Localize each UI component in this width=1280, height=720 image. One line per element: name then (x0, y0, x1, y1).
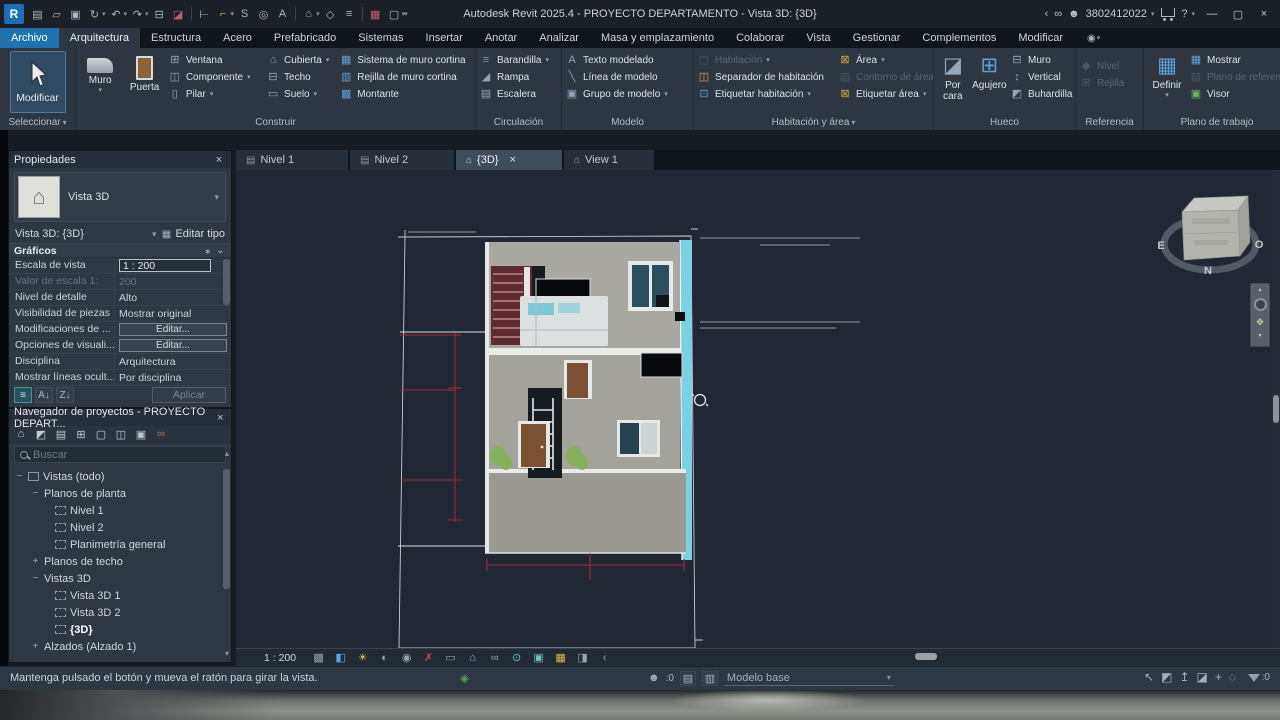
tab-gestionar[interactable]: Gestionar (842, 28, 912, 48)
instance-name[interactable]: Vista 3D: {3D} (15, 228, 84, 240)
pan-zoom-icon[interactable]: ✥ (1256, 317, 1264, 328)
vertical-opening-icon: ↕ (1010, 71, 1024, 84)
hueco-vertical-button[interactable]: ↕Vertical (1010, 71, 1072, 84)
property-label: Escala de vista (9, 258, 115, 273)
tree-item-vistas-todo[interactable]: −Vistas (todo) (9, 468, 231, 485)
tag-icon[interactable]: ◎ (254, 5, 273, 23)
temporary-isolate-icon[interactable]: ⊙ (509, 651, 524, 665)
property-label: Nivel de detalle (9, 290, 115, 305)
type-selector[interactable]: ⌂ Vista 3D ▾ (14, 172, 226, 222)
property-value[interactable]: Arquitectura (115, 356, 231, 368)
families-icon[interactable]: ◫ (113, 427, 129, 441)
navigation-bar[interactable]: ▴ ✥ ▾ (1250, 283, 1270, 347)
stair-icon: ▤ (479, 88, 493, 101)
collapse-icon[interactable]: ‹ (1045, 8, 1049, 20)
properties-title-bar[interactable]: Propiedades × (9, 151, 231, 168)
record-menu[interactable]: ◉▾ (1080, 28, 1108, 48)
ceiling-icon: ⊟ (266, 71, 280, 84)
reveal-hidden-icon[interactable]: ∞ (487, 651, 502, 665)
property-label: Visibilidad de piezas (9, 306, 115, 321)
property-row-escala[interactable]: Escala de vista (9, 258, 231, 274)
panel-circulacion: ≡Barandilla ◢Rampa ▤Escalera Circulación (476, 48, 562, 130)
tab-complementos[interactable]: Complementos (911, 28, 1007, 48)
instance-selector-row: Vista 3D: {3D} ▾ ▦ Editar tipo (9, 225, 231, 243)
more-controls-icon[interactable]: ‹ (597, 651, 612, 665)
window-icon: ⊞ (168, 54, 182, 67)
view-scale-button[interactable]: 1 : 200 (264, 652, 296, 664)
property-row-modificaciones[interactable]: Modificaciones de ... Editar... (9, 322, 231, 338)
compass-east-label: E (1157, 240, 1164, 252)
view-cube (1182, 196, 1250, 260)
componente-button[interactable]: ◫Componente (168, 71, 264, 84)
detail-level-icon[interactable]: ▩ (311, 651, 326, 665)
views-all-icon (28, 472, 39, 481)
view-tab-bar: ▤Nivel 1 ▤Nivel 2 ⌂{3D}× ⌂View 1 (236, 150, 1280, 170)
displace-elements-icon[interactable]: ▣ (531, 651, 546, 665)
escalera-button[interactable]: ▤Escalera (479, 88, 549, 101)
tab-anotar[interactable]: Anotar (474, 28, 528, 48)
chevron-down-icon: ▾ (887, 673, 891, 682)
property-row-lineas-ocultas[interactable]: Mostrar líneas ocult... Por disciplina (9, 370, 231, 386)
editable-count: :0 (666, 673, 674, 684)
open-icon[interactable]: ▱ (47, 5, 66, 23)
collapse-icons[interactable]: ⁎ ⌄ (205, 245, 226, 256)
tree-item-alzados[interactable]: +Alzados (Alzado 1) (9, 638, 231, 655)
lock-3d-view-icon[interactable]: ⌂ (465, 651, 480, 665)
model-3d-view[interactable]: E O N (236, 170, 1280, 648)
close-view-icon[interactable]: × (505, 154, 519, 166)
tree-item-3d-current[interactable]: {3D} (9, 621, 231, 638)
modify-label: Modificar (16, 92, 59, 104)
tree-item-vista-3d-1[interactable]: Vista 3D 1 (9, 587, 231, 604)
property-value[interactable]: Alto (115, 292, 231, 304)
modify-cursor-icon (27, 61, 49, 89)
property-row-opciones[interactable]: Opciones de visuali... Editar... (9, 338, 231, 354)
quick-access-toolbar: ▤ ▱ ▣ ↻▾ ↶▾ ↷▾ ⊟ ◪ ⊢ ⌐▾ S ◎ A ⌂▾ ◇ ≡ ▦ ▢… (28, 5, 409, 23)
properties-palette: Propiedades × ⌂ Vista 3D ▾ Vista 3D: {3D… (8, 150, 232, 408)
horizontal-scrollbar-thumb[interactable] (915, 653, 937, 660)
revit-logo[interactable]: R (4, 4, 24, 24)
view-tab-nivel-2[interactable]: ▤Nivel 2 (350, 150, 454, 170)
rampa-button[interactable]: ◢Rampa (479, 71, 549, 84)
browser-tree: −Vistas (todo) −Planos de planta Nivel 1… (9, 466, 231, 655)
area-icon: ⊠ (838, 54, 852, 67)
worksharing-icon[interactable]: ◈ (460, 671, 469, 685)
navbar-expand-icon[interactable]: ▴ (1258, 288, 1261, 292)
tree-item-nivel-2[interactable]: Nivel 2 (9, 519, 231, 536)
tab-colaborar[interactable]: Colaborar (725, 28, 795, 48)
panel-label-plano-de-trabajo[interactable]: Plano de trabajo (1144, 115, 1280, 130)
level-icon: ◆ (1079, 60, 1093, 73)
mullion-icon: ▩ (339, 88, 353, 101)
area-boundary-icon: ▧ (838, 71, 852, 84)
panel-plano-de-trabajo: ▦ Definir▾ ▦Mostrar ▨Plano de referencia… (1144, 48, 1280, 130)
edit-type-button[interactable]: ▦ Editar tipo (160, 228, 225, 241)
select-by-face-icon[interactable]: ◪ (1197, 670, 1208, 684)
properties-title: Propiedades (14, 154, 76, 166)
edit-visibility-button[interactable]: Editar... (119, 323, 227, 336)
panel-construir: Muro▾ Puerta ⊞Ventana ◫Componente ▯Pilar… (76, 48, 476, 130)
rejilla-muro-cortina-button[interactable]: ▥Rejilla de muro cortina (339, 71, 472, 84)
plan-view-icon: ▤ (246, 155, 255, 166)
tab-acero[interactable]: Acero (212, 28, 263, 48)
panel-label-modelo[interactable]: Modelo (562, 115, 693, 130)
home-view-icon[interactable]: ⌂ (13, 427, 29, 441)
por-cara-button[interactable]: ◪ Por cara (937, 50, 969, 104)
panel-habitacion-y-area: ▢Habitación ◫Separador de habitación ⊡Et… (694, 48, 934, 130)
tab-masa-y-emplazamiento[interactable]: Masa y emplazamiento (590, 28, 725, 48)
chevron-down-icon[interactable]: ▾ (152, 229, 157, 240)
pillar-icon: ▯ (168, 88, 182, 101)
links-icon[interactable]: ∞ (153, 427, 169, 441)
tab-sistemas[interactable]: Sistemas (347, 28, 414, 48)
legends-icon[interactable]: ▢ (93, 427, 109, 441)
model-line-icon: ╲ (565, 71, 579, 84)
property-label: Disciplina (9, 354, 115, 369)
view-icon (55, 506, 66, 515)
dormer-icon: ◩ (1010, 88, 1024, 101)
floor-icon: ▭ (266, 88, 280, 101)
room-separator-icon: ◫ (697, 71, 711, 84)
property-value: 200 (115, 276, 231, 288)
apply-button[interactable]: Aplicar (152, 387, 226, 403)
linea-de-modelo-button[interactable]: ╲Línea de modelo (565, 71, 668, 84)
design-option-select[interactable]: Modelo base ▾ (724, 670, 894, 686)
edit-display-options-button[interactable]: Editar... (119, 339, 227, 352)
panel-modelo: ATexto modelado ╲Línea de modelo ▣Grupo … (562, 48, 694, 130)
status-center-group: ☻ :0 ▤ ▥ Modelo base ▾ (648, 670, 894, 686)
modify-button[interactable]: Modificar (10, 51, 66, 113)
panel-hueco: ◪ Por cara ⊞ Agujero ⊟Muro ↕Vertical ◩Bu… (934, 48, 1076, 130)
ventana-button[interactable]: ⊞Ventana (168, 54, 264, 67)
compass-west-label: O (1255, 239, 1264, 251)
groups-icon[interactable]: ▣ (133, 427, 149, 441)
close-icon[interactable]: × (215, 412, 226, 424)
grid-icon: ⊞ (1079, 77, 1093, 90)
type-name: Vista 3D (68, 191, 109, 203)
account-id[interactable]: 3802412022 (1086, 8, 1147, 20)
set-workplane-icon: ▦ (1153, 52, 1181, 78)
mostrar-button[interactable]: ▦Mostrar (1189, 54, 1280, 67)
contorno-de-area-button[interactable]: ▧Contorno de área (838, 71, 930, 84)
view-tab-3d-active[interactable]: ⌂{3D}× (456, 150, 562, 170)
view-tab-nivel-1[interactable]: ▤Nivel 1 (236, 150, 348, 170)
muro-button[interactable]: Muro▾ (79, 50, 121, 95)
scale-value-input[interactable] (119, 259, 211, 272)
section-box-icon[interactable]: ◨ (575, 651, 590, 665)
redo-dropdown[interactable]: ▾ (145, 10, 149, 18)
sun-path-icon[interactable]: ☀ (355, 651, 370, 665)
sort-menu-icon[interactable]: ≡ (14, 387, 32, 403)
sheets-icon[interactable]: ▤ (53, 427, 69, 441)
search-icon[interactable]: ∞ (1054, 8, 1062, 20)
close-hidden-windows-icon[interactable]: ▦ (366, 5, 385, 23)
property-row-disciplina[interactable]: Disciplina Arquitectura (9, 354, 231, 370)
crop-view-icon[interactable]: ✗ (421, 651, 436, 665)
thin-lines-icon[interactable]: ≡ (340, 5, 359, 23)
worksets-icon[interactable]: ▤ (680, 671, 696, 686)
selection-set-icon[interactable]: ◌ (1229, 670, 1236, 684)
tab-archivo[interactable]: Archivo (0, 28, 59, 48)
tag-room-icon: ⊡ (697, 88, 711, 101)
area-button[interactable]: ⊠Área (838, 54, 930, 67)
status-bar: Mantenga pulsado el botón y mueva el rat… (0, 666, 1280, 690)
compass-north-label: N (1204, 265, 1212, 277)
panel-label-seleccionar[interactable]: Seleccionar (0, 115, 75, 130)
tab-modificar[interactable]: Modificar (1007, 28, 1074, 48)
room-icon: ▢ (697, 54, 711, 67)
buhardilla-button[interactable]: ◩Buhardilla (1010, 88, 1072, 101)
sync-dropdown[interactable]: ▾ (102, 10, 106, 18)
spline-icon[interactable]: S (235, 5, 254, 23)
tab-estructura[interactable]: Estructura (140, 28, 212, 48)
panel-label-hueco[interactable]: Hueco (934, 115, 1075, 130)
select-underlay-icon[interactable]: ◩ (1161, 670, 1172, 684)
roof-icon: ⌂ (266, 54, 280, 67)
close-button[interactable]: × (1254, 6, 1274, 22)
minimize-button[interactable]: — (1202, 6, 1222, 22)
divider (191, 7, 192, 21)
properties-grid: Escala de vista Valor de escala 1: 200 N… (9, 258, 231, 386)
opening-by-face-icon: ◪ (939, 52, 967, 78)
section-icon[interactable]: ◇ (321, 5, 340, 23)
filter-control[interactable]: :0 (1248, 672, 1270, 683)
barandilla-button[interactable]: ≡Barandilla (479, 54, 549, 67)
pilar-button[interactable]: ▯Pilar (168, 88, 264, 101)
rendering-icon[interactable]: ◉ (399, 651, 414, 665)
store-cart-icon[interactable] (1161, 8, 1175, 17)
shaft-icon: ⊞ (975, 52, 1003, 78)
shadows-icon[interactable]: ◐ (377, 651, 392, 665)
drag-on-selection-icon[interactable]: + (1215, 670, 1222, 684)
title-bar: R ▤ ▱ ▣ ↻▾ ↶▾ ↷▾ ⊟ ◪ ⊢ ⌐▾ S ◎ A ⌂▾ ◇ ≡ ▦… (0, 0, 1280, 28)
user-icon[interactable]: ☻ (1068, 8, 1080, 20)
schedules-icon[interactable]: ⊞ (73, 427, 89, 441)
property-row-visibilidad[interactable]: Visibilidad de piezas Mostrar original (9, 306, 231, 322)
plano-de-referencia-button[interactable]: ▨Plano de referencia (1189, 71, 1280, 84)
filter-icon (1248, 674, 1260, 682)
search-icon (20, 451, 28, 459)
panel-seleccionar: Modificar Seleccionar (0, 48, 76, 130)
puerta-button[interactable]: Puerta (123, 50, 165, 95)
property-value[interactable]: Mostrar original (115, 308, 231, 320)
tree-item-nivel-1[interactable]: Nivel 1 (9, 502, 231, 519)
curtain-system-icon: ▦ (339, 54, 353, 67)
panel-label-habitacion-y-area[interactable]: Habitación y área (694, 115, 933, 130)
editable-only-icon[interactable]: ☻ (648, 672, 660, 684)
browser-search[interactable] (14, 446, 226, 463)
view-icon (55, 608, 66, 617)
tab-insertar[interactable]: Insertar (415, 28, 474, 48)
print-icon[interactable]: ⊟ (150, 5, 169, 23)
plan-view-icon: ▤ (360, 155, 369, 166)
transfer-icon[interactable]: ◪ (169, 5, 188, 23)
select-pinned-icon[interactable]: ↥ (1179, 670, 1189, 684)
grupo-de-modelo-button[interactable]: ▣Grupo de modelo (565, 88, 668, 101)
house-view-icon: ⌂ (574, 155, 580, 166)
status-message: Mantenga pulsado el botón y mueva el rat… (10, 672, 318, 684)
ribbon-tab-bar: Archivo Arquitectura Estructura Acero Pr… (0, 28, 1280, 48)
divider (295, 7, 296, 21)
project-browser-palette: Navegador de proyectos - PROYECTO DEPART… (8, 408, 232, 663)
tab-vista[interactable]: Vista (795, 28, 841, 48)
save-icon[interactable]: ▣ (66, 5, 85, 23)
scrollbar-thumb[interactable] (1273, 395, 1279, 423)
window-title: Autodesk Revit 2025.4 - PROYECTO DEPARTA… (463, 8, 816, 20)
filter-count: :0 (1262, 672, 1270, 683)
techo-button[interactable]: ⊟Techo (266, 71, 337, 84)
tree-item-planimetria-general[interactable]: Planimetría general (9, 536, 231, 553)
camera-icon: ◉ (1087, 33, 1096, 44)
properties-footer: ≡ A↓ Z↓ Aplicar (14, 386, 226, 404)
property-label: Valor de escala 1: (9, 274, 115, 289)
view-dropdown[interactable]: ▾ (316, 10, 320, 18)
view-icon (55, 591, 66, 600)
vertical-scrollbar[interactable] (1272, 170, 1280, 648)
nivel-button[interactable]: ◆Nivel (1079, 60, 1124, 73)
text-icon[interactable]: A (273, 5, 292, 23)
dimension-dropdown[interactable]: ▾ (231, 10, 235, 18)
help-dropdown[interactable]: ▾ (1191, 10, 1195, 18)
edit-type-icon: ▦ (160, 228, 172, 241)
titlebar-right: ‹ ∞ ☻ 3802412022 ▾ ? ▾ — ▢ × (1045, 6, 1280, 22)
tag-area-icon: ⊠ (838, 88, 852, 101)
panel-label-circulacion[interactable]: Circulación (476, 115, 561, 130)
door-icon (136, 56, 153, 80)
tree-item-vista-3d-2[interactable]: Vista 3D 2 (9, 604, 231, 621)
property-label: Modificaciones de ... (9, 322, 115, 337)
search-input[interactable] (33, 449, 193, 461)
texto-modelado-button[interactable]: ATexto modelado (565, 54, 668, 67)
account-dropdown[interactable]: ▾ (1151, 10, 1155, 18)
ramp-icon: ◢ (479, 71, 493, 84)
selection-toggles: ↖ ◩ ↥ ◪ + ◌ (1144, 670, 1236, 684)
drawing-area[interactable]: E O N ▴ ✥ ▾ (236, 170, 1280, 648)
railing-icon: ≡ (479, 54, 493, 67)
tab-prefabricado[interactable]: Prefabricado (263, 28, 347, 48)
type-thumbnail-house-icon: ⌂ (18, 176, 60, 218)
chevron-down-icon[interactable]: ▾ (214, 192, 222, 203)
navbar-more-icon[interactable]: ▾ (1258, 334, 1261, 338)
separador-habitacion-button[interactable]: ◫Separador de habitación (697, 71, 836, 84)
view-icon (55, 523, 66, 532)
show-workplane-icon: ▦ (1189, 54, 1203, 67)
scroll-up-icon[interactable]: ▴ (225, 449, 229, 458)
wall-icon (87, 58, 113, 73)
property-value[interactable]: Por disciplina (115, 372, 231, 384)
close-icon[interactable]: × (212, 154, 226, 166)
panel-referencia: ◆Nivel ⊞Rejilla Referencia (1076, 48, 1144, 130)
wall-opening-icon: ⊟ (1010, 54, 1024, 67)
property-row-nivel-detalle[interactable]: Nivel de detalle Alto (9, 290, 231, 306)
property-label: Opciones de visuali... (9, 338, 115, 353)
view-icon (55, 625, 66, 634)
component-icon: ◫ (168, 71, 182, 84)
view-tab-view-1[interactable]: ⌂View 1 (564, 150, 654, 170)
measure-icon[interactable]: ⊢ (195, 5, 214, 23)
new-document-icon[interactable]: ▤ (28, 5, 47, 23)
montante-button[interactable]: ▩Montante (339, 88, 472, 101)
visor-button[interactable]: ▣Visor (1189, 88, 1280, 101)
desktop-background-strip (0, 690, 1280, 720)
etiquetar-habitacion-button[interactable]: ⊡Etiquetar habitación (697, 88, 836, 101)
project-browser-title: Navegador de proyectos - PROYECTO DEPART… (14, 406, 215, 430)
reference-plane-icon: ▨ (1189, 71, 1203, 84)
tree-item-vistas-3d[interactable]: −Vistas 3D (9, 570, 231, 587)
browser-scrollbar[interactable] (223, 469, 230, 589)
etiquetar-area-button[interactable]: ⊠Etiquetar área (838, 88, 930, 101)
sort-ascending-icon[interactable]: A↓ (35, 387, 53, 403)
left-edge-strip (0, 130, 8, 690)
tree-item-planos-de-techo[interactable]: +Planos de techo (9, 553, 231, 570)
tab-arquitectura[interactable]: Arquitectura (59, 28, 140, 48)
customize-qat-dropdown[interactable]: ▾ (404, 10, 408, 18)
panel-label-construir[interactable]: Construir (76, 115, 475, 130)
select-links-icon[interactable]: ↖ (1144, 670, 1154, 684)
orbit-cursor (692, 394, 708, 406)
design-options-icon[interactable]: ▥ (702, 671, 718, 686)
model-text-icon: A (565, 54, 579, 67)
sort-descending-icon[interactable]: Z↓ (56, 387, 74, 403)
crop-region-icon[interactable]: ▭ (443, 651, 458, 665)
house-view-icon: ⌂ (466, 155, 472, 166)
property-label: Mostrar líneas ocult... (9, 370, 115, 385)
model-group-icon: ▣ (565, 88, 579, 101)
divider (362, 7, 363, 21)
ribbon: Modificar Seleccionar Muro▾ Puerta ⊞Vent… (0, 48, 1280, 130)
restore-button[interactable]: ▢ (1228, 6, 1248, 22)
undo-dropdown[interactable]: ▾ (124, 10, 128, 18)
project-browser-title-bar[interactable]: Navegador de proyectos - PROYECTO DEPART… (9, 409, 231, 426)
habitacion-button[interactable]: ▢Habitación (697, 54, 836, 67)
sistema-muro-cortina-button[interactable]: ▦Sistema de muro cortina (339, 54, 472, 67)
help-icon[interactable]: ? (1181, 8, 1187, 20)
cubierta-button[interactable]: ⌂Cubierta (266, 54, 337, 67)
panel-label-referencia[interactable]: Referencia (1076, 115, 1143, 130)
visual-style-icon[interactable]: ◧ (333, 651, 348, 665)
definir-button[interactable]: ▦ Definir▾ (1147, 50, 1187, 100)
agujero-button[interactable]: ⊞ Agujero (971, 50, 1008, 93)
tab-analizar[interactable]: Analizar (528, 28, 590, 48)
reveal-constraints-icon[interactable]: ▦ (553, 651, 568, 665)
property-row-valor-escala: Valor de escala 1: 200 (9, 274, 231, 290)
properties-scrollbar[interactable] (223, 259, 230, 305)
steering-wheel-icon[interactable] (1254, 298, 1267, 311)
views-icon[interactable]: ◩ (33, 427, 49, 441)
view-icon (55, 540, 66, 549)
view-control-bar: 1 : 200 ▩ ◧ ☀ ◐ ◉ ✗ ▭ ⌂ ∞ ⊙ ▣ ▦ ◨ ‹ (236, 648, 1280, 666)
suelo-button[interactable]: ▭Suelo (266, 88, 337, 101)
curtain-grid-icon: ▥ (339, 71, 353, 84)
viewer-icon: ▣ (1189, 88, 1203, 101)
tree-item-planos-de-planta[interactable]: −Planos de planta (9, 485, 231, 502)
scroll-down-icon[interactable]: ▾ (225, 649, 229, 658)
section-graficos[interactable]: Gráficos ⁎ ⌄ (9, 243, 231, 258)
rejilla-button[interactable]: ⊞Rejilla (1079, 77, 1124, 90)
hueco-muro-button[interactable]: ⊟Muro (1010, 54, 1072, 67)
